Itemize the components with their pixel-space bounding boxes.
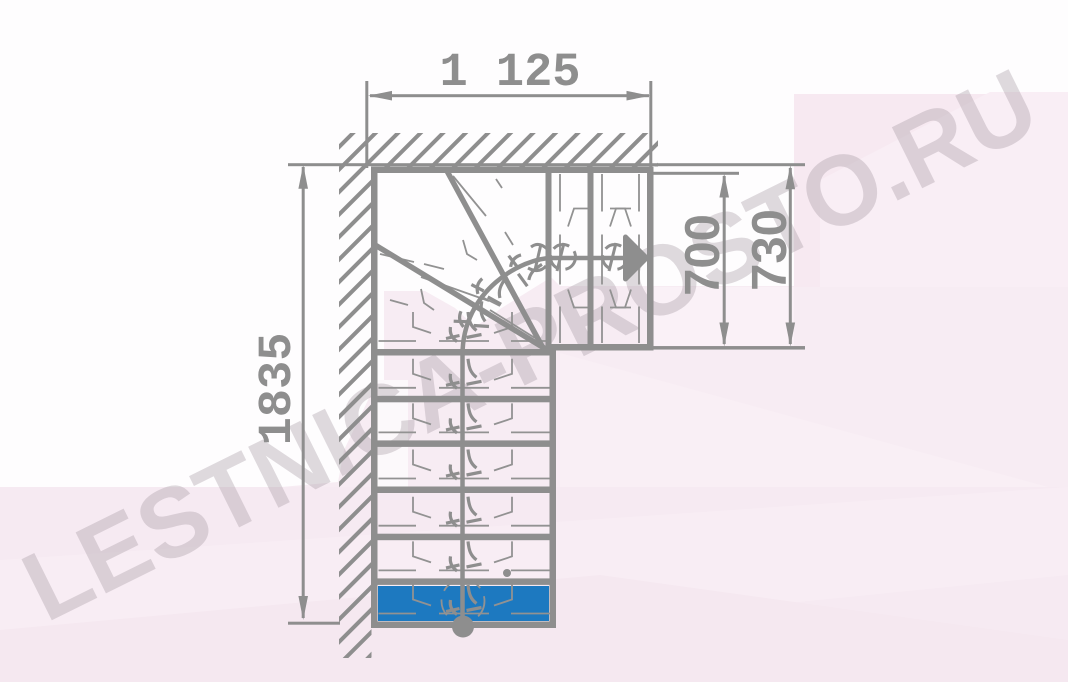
- svg-text:730: 730: [743, 209, 797, 291]
- svg-text:700: 700: [676, 214, 730, 296]
- svg-text:1 125: 1 125: [439, 47, 580, 100]
- svg-text:1835: 1835: [252, 333, 305, 446]
